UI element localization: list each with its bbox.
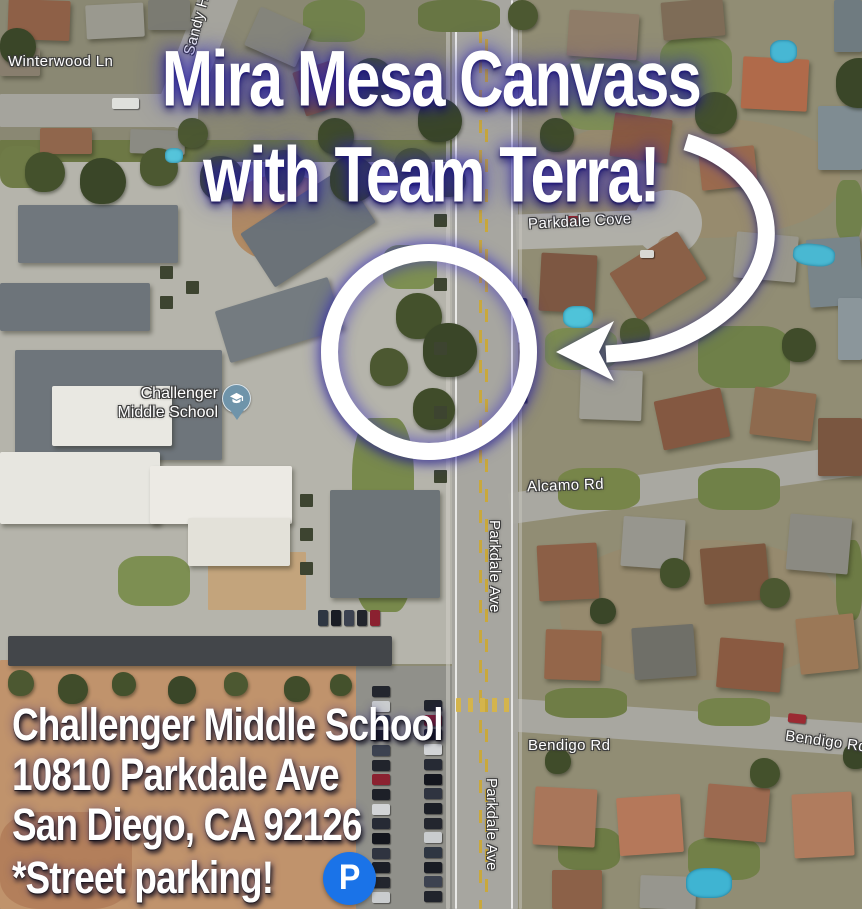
address-school-name: Challenger Middle School: [12, 698, 443, 752]
address-street: 10810 Parkdale Ave: [12, 748, 339, 802]
canvass-flyer: Winterwood Ln Sandy Ho Parkdale Cove Alc…: [0, 0, 862, 909]
parking-icon-letter: P: [338, 853, 359, 903]
street-parking-note: *Street parking!: [12, 851, 273, 905]
parking-icon: P: [323, 852, 376, 905]
address-city: San Diego, CA 92126: [12, 798, 362, 852]
address-block: Challenger Middle School 10810 Parkdale …: [12, 700, 501, 906]
